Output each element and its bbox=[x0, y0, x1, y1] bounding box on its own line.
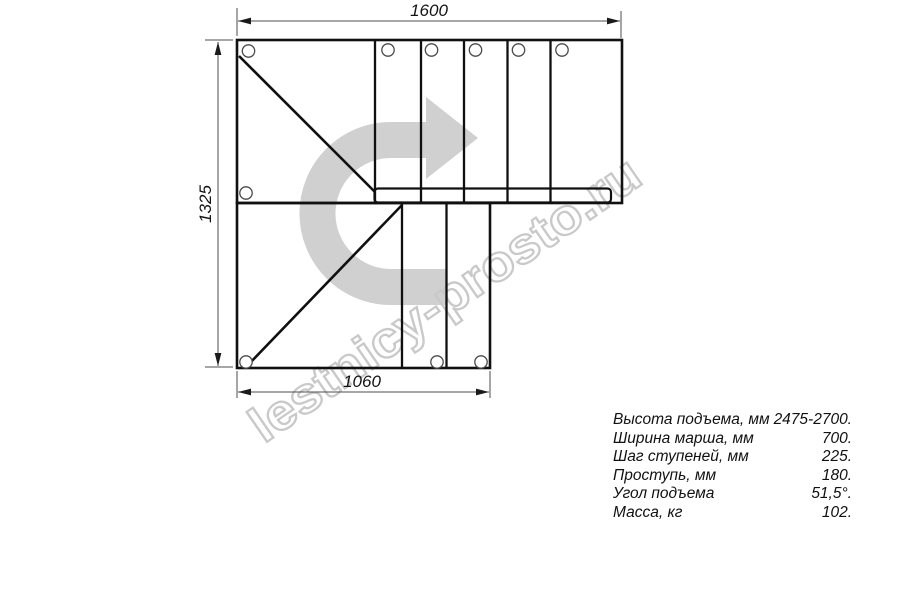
dim-arrow-left-icon bbox=[238, 389, 251, 396]
dimension-top-value: 1600 bbox=[410, 1, 448, 20]
dim-arrow-down-icon bbox=[215, 353, 222, 366]
mounting-hole bbox=[431, 356, 443, 368]
upper-landing-diagonal bbox=[239, 56, 375, 192]
spec-label: Шаг ступеней, мм bbox=[613, 448, 749, 467]
dim-arrow-right-icon bbox=[607, 18, 620, 25]
spec-value: 102. bbox=[822, 504, 852, 523]
spec-value: 225. bbox=[822, 448, 852, 467]
spec-value: 51,5°. bbox=[811, 485, 852, 504]
spec-label: Ширина марша, мм bbox=[613, 430, 754, 449]
spec-row-height: Высота подъема, мм 2475-2700. bbox=[613, 411, 852, 430]
spec-value: 2475-2700. bbox=[774, 411, 852, 430]
mounting-hole bbox=[382, 44, 394, 56]
dimension-left: 1325 bbox=[196, 40, 233, 367]
spec-row-angle: Угол подъема 51,5°. bbox=[613, 485, 852, 504]
dimension-top: 1600 bbox=[237, 1, 621, 38]
watermark-text: lestnicy-prosto.ru bbox=[239, 145, 651, 453]
mounting-hole bbox=[425, 44, 437, 56]
dimension-left-value: 1325 bbox=[196, 185, 215, 223]
spec-label: Масса, кг bbox=[613, 504, 682, 523]
spec-row-tread: Проступь, мм 180. bbox=[613, 467, 852, 486]
dim-arrow-up-icon bbox=[215, 42, 222, 55]
direction-arrow-head bbox=[426, 97, 478, 179]
spec-label: Угол подъема bbox=[613, 485, 714, 504]
spec-label: Высота подъема, мм bbox=[613, 411, 770, 430]
mounting-hole bbox=[512, 44, 524, 56]
mounting-hole bbox=[475, 356, 487, 368]
dim-arrow-left-icon bbox=[238, 18, 251, 25]
dimension-bottom-value: 1060 bbox=[343, 372, 381, 391]
staircase-drawing-page: lestnicy-prosto.ru bbox=[0, 0, 900, 600]
mounting-hole bbox=[469, 44, 481, 56]
upper-step-dividers bbox=[375, 40, 551, 203]
spec-table: Высота подъема, мм 2475-2700. Ширина мар… bbox=[613, 411, 852, 523]
mounting-hole bbox=[240, 187, 252, 199]
spec-row-flight-width: Ширина марша, мм 700. bbox=[613, 430, 852, 449]
spec-value: 700. bbox=[822, 430, 852, 449]
spec-row-step-pitch: Шаг ступеней, мм 225. bbox=[613, 448, 852, 467]
mounting-hole bbox=[556, 44, 568, 56]
mounting-hole bbox=[242, 45, 254, 57]
spec-label: Проступь, мм bbox=[613, 467, 716, 486]
spec-value: 180. bbox=[822, 467, 852, 486]
mounting-hole bbox=[240, 356, 252, 368]
dim-arrow-right-icon bbox=[476, 389, 489, 396]
spec-row-mass: Масса, кг 102. bbox=[613, 504, 852, 523]
